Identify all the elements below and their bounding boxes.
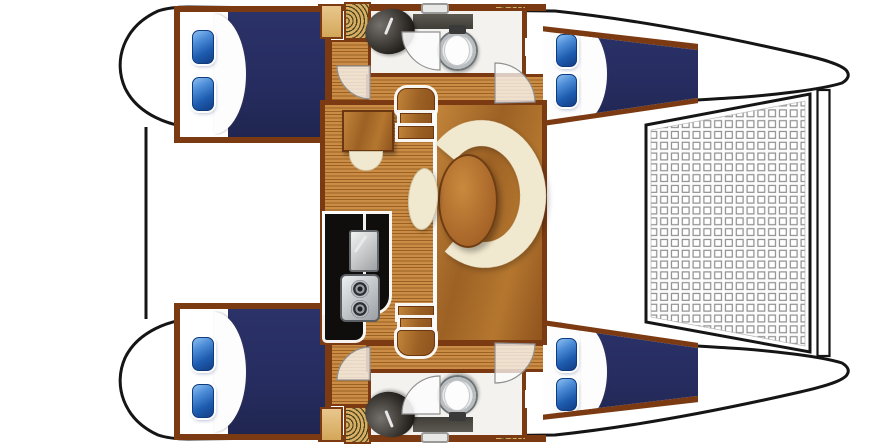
stove-burner-2 bbox=[351, 300, 369, 318]
catamaran-floor-plan bbox=[0, 0, 890, 446]
starboard-towel-rail bbox=[421, 432, 449, 443]
starboard-aft-pillow-2 bbox=[192, 384, 214, 418]
galley-faucet bbox=[354, 235, 368, 253]
nav-station-desk bbox=[342, 110, 394, 152]
port-toilet-tank bbox=[449, 25, 466, 34]
bow-trampoline-net bbox=[651, 101, 805, 346]
port-aft-pillow-1 bbox=[192, 30, 214, 64]
starboard-forward-pillow-2 bbox=[556, 378, 577, 411]
port-aft-cabin bbox=[174, 6, 331, 143]
starboard-forward-seat-deck bbox=[366, 343, 546, 372]
starboard-aft-pillow-1 bbox=[192, 337, 214, 371]
galley-stove bbox=[340, 274, 380, 322]
port-aft-pillow-2 bbox=[192, 77, 214, 111]
starboard-forward-pillow-1 bbox=[556, 338, 577, 371]
port-steps-tread-2 bbox=[398, 126, 434, 139]
saloon-table bbox=[438, 154, 498, 248]
forward-crossbeam-bar bbox=[818, 90, 830, 356]
stove-burner-1 bbox=[351, 280, 369, 298]
port-towel-rail bbox=[421, 3, 449, 14]
starboard-aft-cabin bbox=[174, 303, 331, 440]
port-steps-backrest bbox=[397, 88, 435, 114]
port-forward-pillow-1 bbox=[556, 34, 577, 67]
port-toilet bbox=[437, 30, 478, 71]
galley-sink bbox=[349, 230, 379, 272]
port-toilet-lid bbox=[444, 35, 470, 66]
port-deck-hatch bbox=[320, 4, 343, 39]
port-forward-seat-deck bbox=[366, 74, 546, 103]
starboard-toilet-tank bbox=[449, 412, 466, 421]
starboard-steps-backrest bbox=[397, 330, 435, 356]
starboard-steps-tread-1 bbox=[400, 318, 432, 330]
starboard-head-faucet bbox=[384, 410, 394, 428]
starboard-toilet bbox=[437, 375, 478, 416]
port-steps-tread-1 bbox=[400, 113, 432, 125]
starboard-deck-hatch bbox=[320, 407, 343, 442]
port-forward-pillow-2 bbox=[556, 74, 577, 107]
port-head-faucet bbox=[384, 17, 394, 35]
starboard-toilet-lid bbox=[444, 380, 470, 411]
